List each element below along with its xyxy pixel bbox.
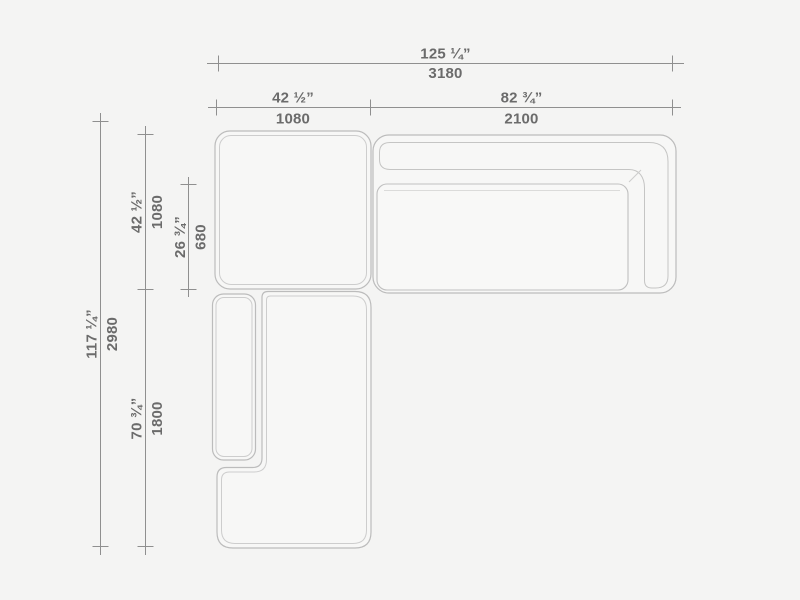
corner-module bbox=[215, 131, 371, 289]
dim-side-overall-mm: 2980 bbox=[104, 317, 121, 351]
dim-chaise-mm: 1800 bbox=[149, 401, 166, 435]
dim-seat-depth-inches: 26 ¾” bbox=[172, 216, 189, 258]
chaise-module bbox=[213, 292, 372, 549]
dim-side-corner-inches: 42 ½” bbox=[129, 191, 146, 233]
dim-top-left-inches: 42 ½” bbox=[272, 90, 314, 107]
dim-top-overall-inches: 125 ¼” bbox=[420, 46, 470, 63]
dim-chaise-inches: 70 ¾” bbox=[129, 398, 146, 440]
dim-top-right-mm: 2100 bbox=[504, 111, 538, 128]
dim-top-left-mm: 1080 bbox=[276, 111, 310, 128]
sofa-modules bbox=[213, 131, 677, 548]
sofa-plan-svg: 125 ¼” 3180 42 ½” 1080 82 ¾” 2100 117 ¼”… bbox=[0, 0, 800, 600]
dim-side-overall-inches: 117 ¼” bbox=[84, 309, 101, 359]
dim-side-corner-mm: 1080 bbox=[149, 195, 166, 229]
dim-seat-depth-mm: 680 bbox=[193, 224, 210, 250]
plan-drawing-canvas: 125 ¼” 3180 42 ½” 1080 82 ¾” 2100 117 ¼”… bbox=[0, 0, 800, 600]
right-sofa-module bbox=[373, 135, 676, 293]
chaise-backrest-shell bbox=[213, 294, 256, 460]
dim-top-right-inches: 82 ¾” bbox=[501, 90, 543, 107]
corner-module-shell bbox=[215, 131, 371, 289]
dim-top-overall-mm: 3180 bbox=[428, 65, 462, 82]
dimension-lines bbox=[93, 56, 685, 556]
right-sofa-seat-cushion bbox=[377, 184, 628, 290]
